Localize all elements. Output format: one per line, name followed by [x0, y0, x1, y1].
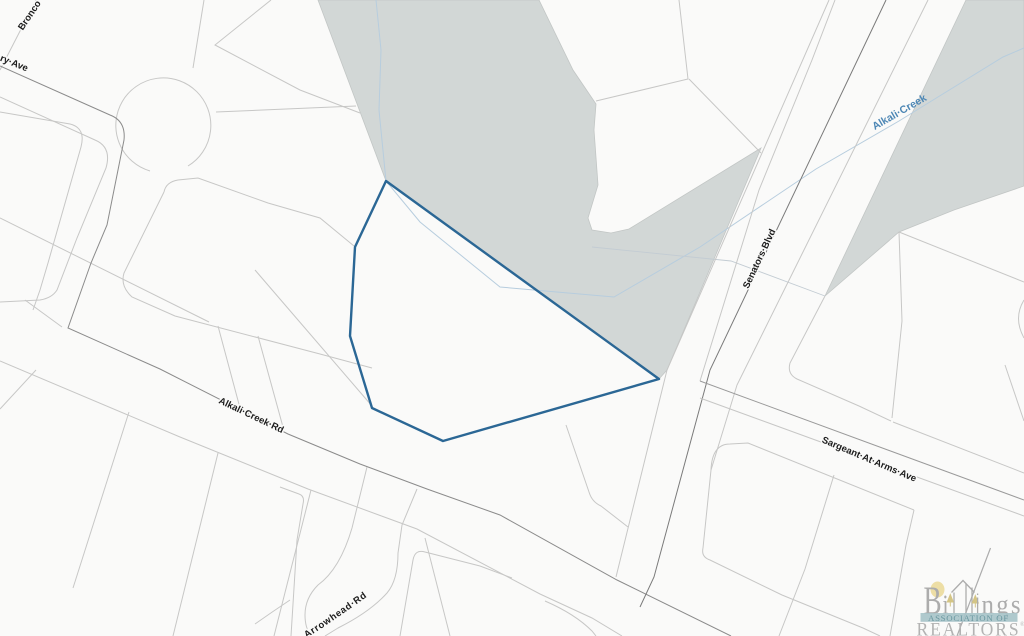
svg-text:REALTORS: REALTORS — [917, 619, 1021, 636]
svg-text:®: ® — [1020, 621, 1024, 628]
